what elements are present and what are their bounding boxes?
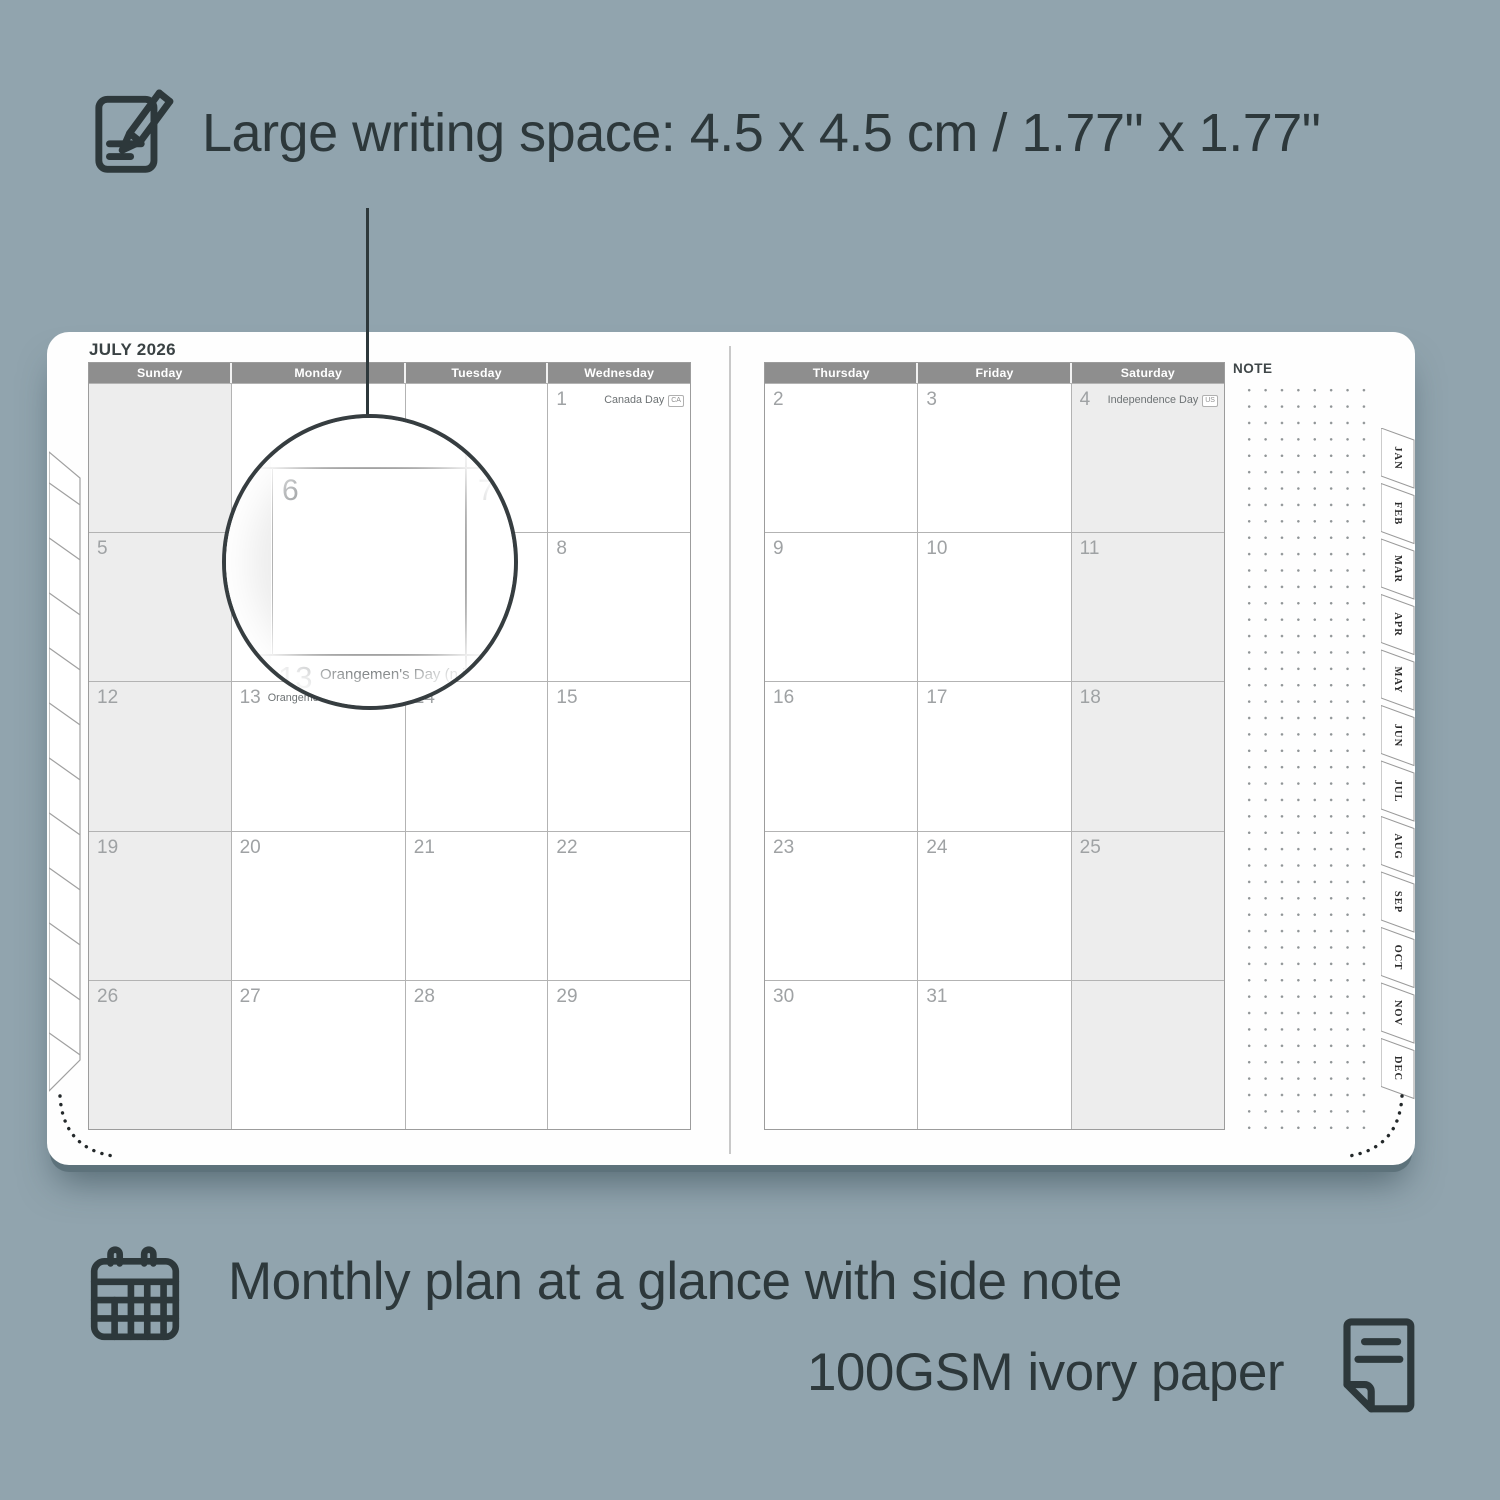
day-number: 8 [556,539,567,559]
day-number: 10 [926,539,947,559]
day-number: 2 [773,390,784,410]
magnifier-lens: 6 7 13 Orangemen's Day (n.i.)UK [222,414,518,710]
day-number: 20 [240,838,261,858]
day-number: 3 [926,390,937,410]
month-tab: MAR [1381,539,1414,599]
day-number: 16 [773,688,794,708]
month-tab: FEB [1381,484,1414,544]
day-cell: 28 [406,981,548,1129]
day-cell [89,384,231,532]
month-tab: NOV [1381,983,1414,1043]
feature-top-text: Large writing space: 4.5 x 4.5 cm / 1.77… [202,102,1320,164]
day-number: 23 [773,838,794,858]
holiday-label: Independence Day [1108,390,1199,406]
page-spine [729,346,731,1154]
day-cell: 20 [232,832,405,980]
grid-line [226,654,514,656]
day-cell: 5 [89,533,231,681]
day-number: 19 [97,838,118,858]
day-cell: 25 [1072,832,1224,980]
magnified-holiday-label: Orangemen's Day (n.i.)UK [320,666,500,683]
day-number: 9 [773,539,784,559]
dow-header: Sunday [89,363,231,383]
day-number: 29 [556,987,577,1007]
day-number: 11 [1080,539,1100,559]
svg-text:JAN: JAN [1392,446,1403,469]
day-cell: 2 [765,384,917,532]
svg-text:SEP: SEP [1392,891,1403,913]
day-number: 12 [97,688,118,708]
month-tab: SEP [1381,872,1414,932]
day-cell: 26 [89,981,231,1129]
day-number: 5 [97,539,108,559]
note-dot-grid [1235,376,1375,1138]
day-cell: 1Canada DayCA [548,384,690,532]
day-number: 24 [926,838,947,858]
day-cell: 19 [89,832,231,980]
day-cell: 8 [548,533,690,681]
month-title: JULY 2026 [89,340,176,360]
month-tab: JUN [1381,706,1414,766]
country-badge: US [1202,395,1218,407]
calendar-grid-right: Thursday Friday Saturday 2 3 4Independen… [764,362,1225,1130]
grid-line [465,418,467,706]
day-number: 30 [773,987,794,1007]
svg-text:NOV: NOV [1392,1000,1403,1026]
month-tab: JUL [1381,761,1414,821]
day-cell: 29 [548,981,690,1129]
notepad-pencil-icon [84,76,190,182]
dow-header: Thursday [765,363,917,383]
feature-paper-text: 100GSM ivory paper [807,1342,1284,1403]
day-cell: 12 [89,682,231,830]
dow-header: Wednesday [548,363,690,383]
svg-text:FEB: FEB [1392,502,1403,525]
holiday-text: Orangemen's Day (n.i.) [320,666,475,683]
paper-icon [1314,1306,1424,1428]
month-tab: AUG [1381,817,1414,877]
day-cell: 24 [918,832,1070,980]
svg-text:MAR: MAR [1392,555,1403,583]
weekend-column-shading [226,418,271,706]
day-number: 15 [556,688,577,708]
day-number: 21 [414,838,435,858]
day-number: 17 [926,688,947,708]
magnified-day-number: 13 [278,662,312,693]
month-tab: APR [1381,595,1414,655]
day-cell: 17 [918,682,1070,830]
day-cell: 18 [1072,682,1224,830]
country-badge: CA [668,395,684,407]
magnified-day-number: 6 [282,476,299,506]
month-tab: JAN [1381,428,1414,488]
svg-text:APR: APR [1392,612,1403,637]
day-number: 27 [240,987,261,1007]
day-cell [1072,981,1224,1129]
callout-connector-line [366,208,369,417]
svg-text:DEC: DEC [1392,1056,1403,1081]
feature-monthly-text: Monthly plan at a glance with side note [228,1251,1122,1312]
day-number: 4 [1080,390,1091,410]
left-edge-hatch [49,450,85,1094]
day-cell: 9 [765,533,917,681]
day-cell: 21 [406,832,548,980]
day-cell: 22 [548,832,690,980]
country-badge: UK [481,668,501,681]
holiday-label: Canada Day [604,390,664,406]
day-number: 22 [556,838,577,858]
svg-text:MAY: MAY [1392,666,1403,693]
day-cell: 23 [765,832,917,980]
svg-text:JUN: JUN [1392,724,1403,747]
day-cell: 16 [765,682,917,830]
magnified-day-number: 7 [478,476,495,506]
note-label: NOTE [1233,361,1273,376]
day-cell: 30 [765,981,917,1129]
svg-text:OCT: OCT [1392,945,1403,971]
dow-header: Monday [232,363,405,383]
svg-text:JUL: JUL [1392,780,1403,803]
day-number: 25 [1080,838,1101,858]
day-number: 26 [97,987,118,1007]
day-cell: 11 [1072,533,1224,681]
day-number: 31 [926,987,947,1007]
day-cell: 3 [918,384,1070,532]
dow-header: Saturday [1072,363,1224,383]
day-number: 18 [1080,688,1101,708]
day-cell: 4Independence DayUS [1072,384,1224,532]
month-tab: MAY [1381,650,1414,710]
dow-header: Tuesday [406,363,548,383]
day-number: 1 [556,390,567,410]
month-tabs: JAN FEB MAR APR MAY JUN JUL AUG SEP OCT … [1381,428,1416,1158]
month-tab: OCT [1381,928,1414,988]
day-number: 28 [414,987,435,1007]
day-cell: 15 [548,682,690,830]
writing-space-outline [272,467,467,656]
calendar-icon [84,1243,186,1345]
day-cell: 10 [918,533,1070,681]
svg-text:AUG: AUG [1392,833,1403,859]
grid-line [226,467,514,469]
day-cell: 14 [406,682,548,830]
month-tab: DEC [1381,1039,1414,1099]
day-cell: 31 [918,981,1070,1129]
dow-header: Friday [918,363,1070,383]
day-cell: 27 [232,981,405,1129]
